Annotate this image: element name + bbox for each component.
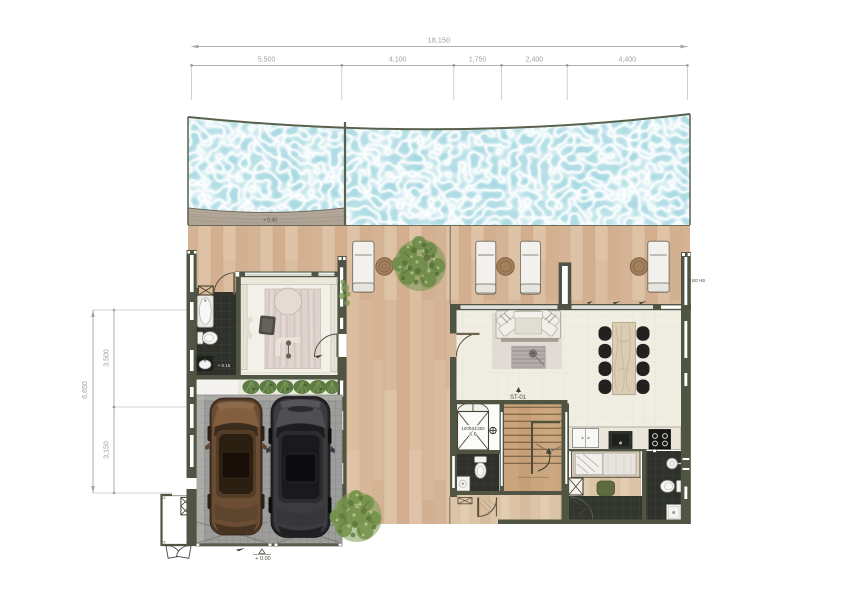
svg-text:BO HB: BO HB — [692, 278, 705, 283]
svg-text:4,100: 4,100 — [389, 57, 407, 64]
svg-text:18,150: 18,150 — [427, 36, 450, 45]
svg-text:6,650: 6,650 — [82, 381, 89, 399]
svg-text:2,400: 2,400 — [526, 57, 544, 64]
svg-text:+ 0.00: + 0.00 — [255, 556, 270, 562]
svg-text:+ 0.40: + 0.40 — [263, 218, 277, 224]
svg-text:3,150: 3,150 — [104, 441, 111, 459]
svg-text:5,500: 5,500 — [258, 57, 276, 64]
svg-text:1000X1350: 1000X1350 — [461, 426, 485, 431]
svg-text:S.B: S.B — [469, 431, 476, 436]
svg-text:1,750: 1,750 — [469, 57, 487, 64]
svg-text:3,500: 3,500 — [104, 349, 111, 367]
svg-text:+ 0.15: + 0.15 — [218, 363, 231, 368]
svg-text:4,400: 4,400 — [619, 57, 637, 64]
